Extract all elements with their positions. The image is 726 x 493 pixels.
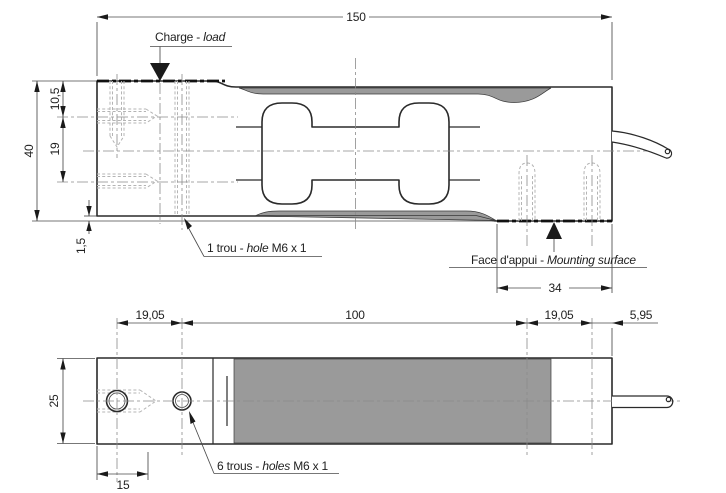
mounting-label-text: Face d'appui - Mounting surface xyxy=(471,253,636,267)
dim-overall-length: 150 xyxy=(97,10,612,24)
dim-lip-text: 1,5 xyxy=(74,237,88,254)
dim-pitch-right-text: 19,05 xyxy=(544,308,574,322)
dim-mounting-length-text: 34 xyxy=(549,281,562,295)
dim-lip: 1,5 xyxy=(74,200,92,254)
charge-label-text: Charge - load xyxy=(155,30,226,44)
charge-arrow xyxy=(150,63,170,81)
dim-offset: 15 xyxy=(97,471,148,492)
dim-chain-plan: 19,05 100 19,05 5,95 xyxy=(117,308,658,326)
hidden-hole-left-bottom xyxy=(97,174,157,188)
charge-label: Charge - load xyxy=(150,30,232,81)
holes6-label-text: 6 trous - holes M6 x 1 xyxy=(217,459,329,473)
cable-plan xyxy=(612,396,673,408)
web-inner-lines xyxy=(236,127,480,180)
drawing-svg: 150 40 10,5 19 1,5 Cha xyxy=(0,0,726,493)
plan-view: 19,05 100 19,05 5,95 25 15 6 trous - hol… xyxy=(47,308,682,492)
mounting-arrow xyxy=(546,222,562,239)
dim-width-text: 25 xyxy=(47,394,61,407)
dim-height-text: 40 xyxy=(22,144,36,157)
dim-mounting-length: 34 xyxy=(497,281,612,295)
load-cell-technical-drawing: 150 40 10,5 19 1,5 Cha xyxy=(0,0,726,493)
hole1-label-text: 1 trou - hole M6 x 1 xyxy=(207,241,307,255)
cable-side xyxy=(612,131,672,158)
holes6-leader-arrow xyxy=(189,411,196,424)
dim-top-hole-text: 10,5 xyxy=(48,87,62,110)
dim-end-text: 5,95 xyxy=(630,308,653,322)
hidden-hole-left-top xyxy=(97,109,157,123)
dim-overall-length-text: 150 xyxy=(346,10,366,24)
dim-pitch-left-text: 19,05 xyxy=(135,308,165,322)
dim-hole-positions: 10,5 19 xyxy=(48,81,66,182)
body-outline xyxy=(97,81,612,221)
bottom-recess xyxy=(256,211,496,221)
dim-width: 25 xyxy=(47,359,66,444)
dim-hole-spacing-text: 19 xyxy=(48,142,62,155)
dim-offset-text: 15 xyxy=(117,478,130,492)
mounting-label: Face d'appui - Mounting surface xyxy=(449,222,647,268)
dim-height: 40 xyxy=(22,81,40,221)
hole1-leader-arrow xyxy=(184,218,192,230)
top-recess xyxy=(239,88,551,103)
side-view: 150 40 10,5 19 1,5 Cha xyxy=(22,10,672,295)
hole1-label: 1 trou - hole M6 x 1 xyxy=(184,218,322,257)
dim-center-text: 100 xyxy=(345,308,365,322)
